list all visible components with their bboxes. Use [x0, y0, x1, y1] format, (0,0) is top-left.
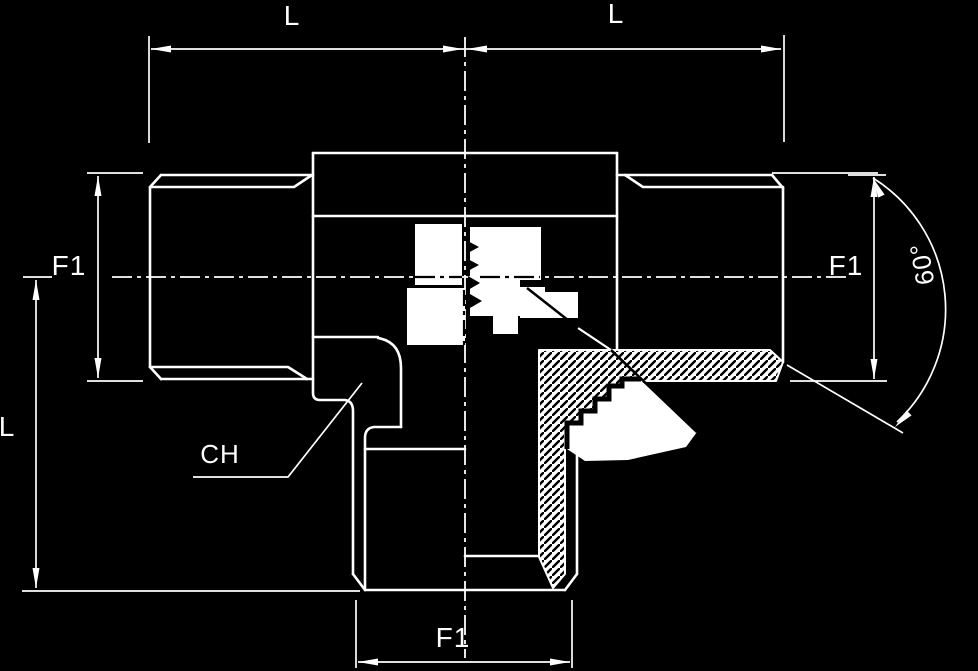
label-CH: CH	[200, 439, 240, 469]
technical-drawing-canvas: L L F1 F1 L F1 CH 60°	[0, 0, 978, 671]
left-port-chamfer-bottom	[150, 367, 161, 379]
leg-chamfer-right	[565, 574, 577, 590]
dimension-arrowheads	[33, 46, 912, 666]
angle-extension-bottom	[787, 365, 903, 433]
dim-label-top-left-L: L	[284, 0, 301, 31]
leg-root-left	[365, 427, 401, 590]
white-patch	[407, 288, 465, 345]
white-patch	[415, 224, 462, 285]
dim-label-right-F1: F1	[829, 250, 864, 281]
dim-label-left-F1: F1	[52, 250, 87, 281]
left-port-chamfer-top	[150, 175, 161, 187]
tee-fitting-drawing: L L F1 F1 L F1 CH 60°	[0, 0, 978, 671]
center-white-patches	[407, 224, 578, 345]
left-port-root-bottom	[150, 367, 307, 379]
white-patch	[493, 316, 518, 334]
dimensions	[22, 35, 946, 668]
section-hatch-area	[539, 350, 783, 588]
dim-label-top-right-L: L	[608, 0, 625, 29]
leg-chamfer-left	[353, 574, 365, 590]
left-port-root-top	[150, 175, 312, 187]
white-patch	[470, 227, 541, 280]
section-break-line-white	[578, 328, 611, 350]
label-60deg: 60°	[904, 241, 941, 288]
centerlines	[112, 37, 850, 658]
dim-label-height-L: L	[0, 411, 15, 442]
leg-internal-wall	[378, 338, 401, 427]
angle-arc	[873, 178, 946, 422]
dim-label-bottom-F1: F1	[436, 622, 471, 653]
right-port-root-top	[625, 175, 783, 187]
